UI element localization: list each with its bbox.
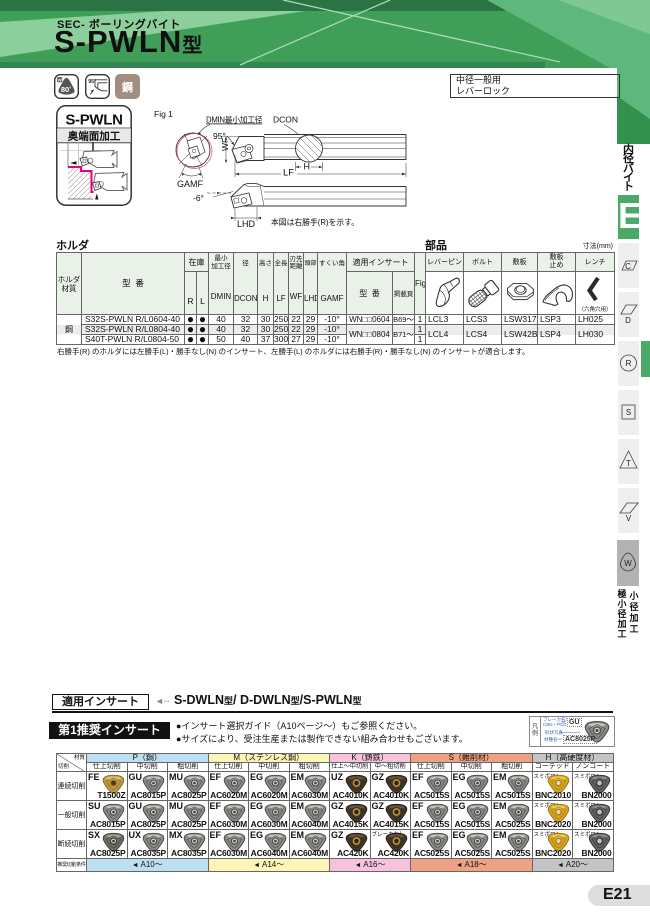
svg-text:T: T bbox=[626, 459, 631, 468]
svg-text:GAMF: GAMF bbox=[177, 179, 204, 189]
svg-text:WF: WF bbox=[220, 138, 230, 151]
svg-text:V: V bbox=[626, 514, 632, 523]
svg-text:奥端面加工: 奥端面加工 bbox=[68, 130, 121, 143]
svg-text:C: C bbox=[625, 262, 631, 271]
svg-text:LHD: LHD bbox=[237, 219, 256, 229]
svg-text:DCON: DCON bbox=[273, 115, 298, 125]
svg-text:W: W bbox=[624, 559, 632, 568]
svg-text:D: D bbox=[625, 316, 631, 325]
svg-text:H: H bbox=[304, 162, 311, 172]
svg-text:DMIN最小加工径: DMIN最小加工径 bbox=[206, 115, 263, 125]
svg-text:本図は右勝手(R)を示す。: 本図は右勝手(R)を示す。 bbox=[271, 217, 359, 227]
svg-text:LF: LF bbox=[283, 168, 294, 179]
svg-text:S-PWLN: S-PWLN bbox=[65, 112, 122, 129]
svg-text:-6°: -6° bbox=[193, 193, 204, 203]
svg-text:W: W bbox=[58, 77, 63, 82]
svg-text:鋼: 鋼 bbox=[121, 80, 133, 94]
svg-text:Fig 1: Fig 1 bbox=[154, 109, 173, 119]
svg-text:S: S bbox=[626, 408, 631, 417]
svg-text:R: R bbox=[626, 359, 632, 368]
